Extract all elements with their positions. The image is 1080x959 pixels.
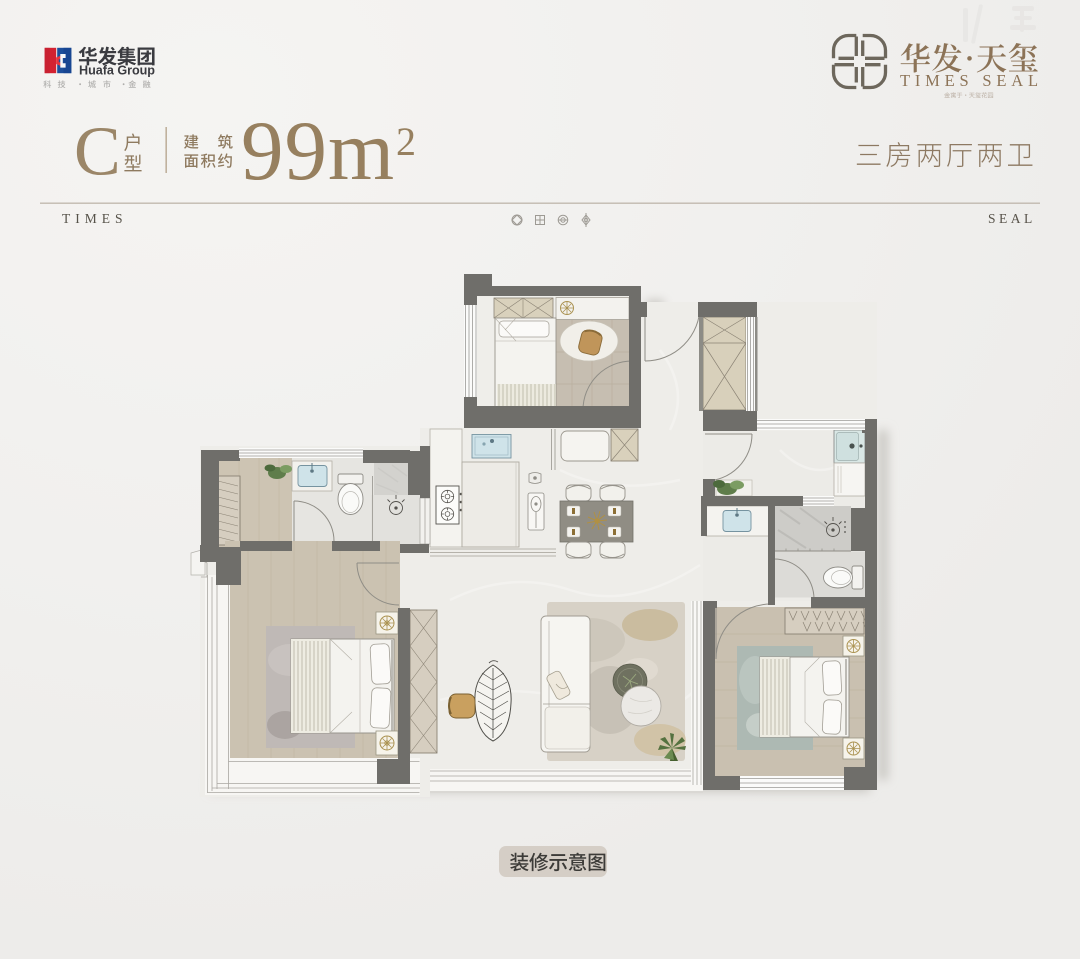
svg-text:99m: 99m bbox=[241, 104, 395, 198]
svg-text:C: C bbox=[74, 114, 121, 191]
svg-text:2: 2 bbox=[396, 119, 416, 164]
svg-text:TIMES: TIMES bbox=[62, 211, 128, 226]
svg-text:SEAL: SEAL bbox=[988, 211, 1036, 226]
svg-text:Huafa Group: Huafa Group bbox=[79, 64, 155, 78]
svg-text:TIMES SEAL: TIMES SEAL bbox=[900, 71, 1043, 90]
